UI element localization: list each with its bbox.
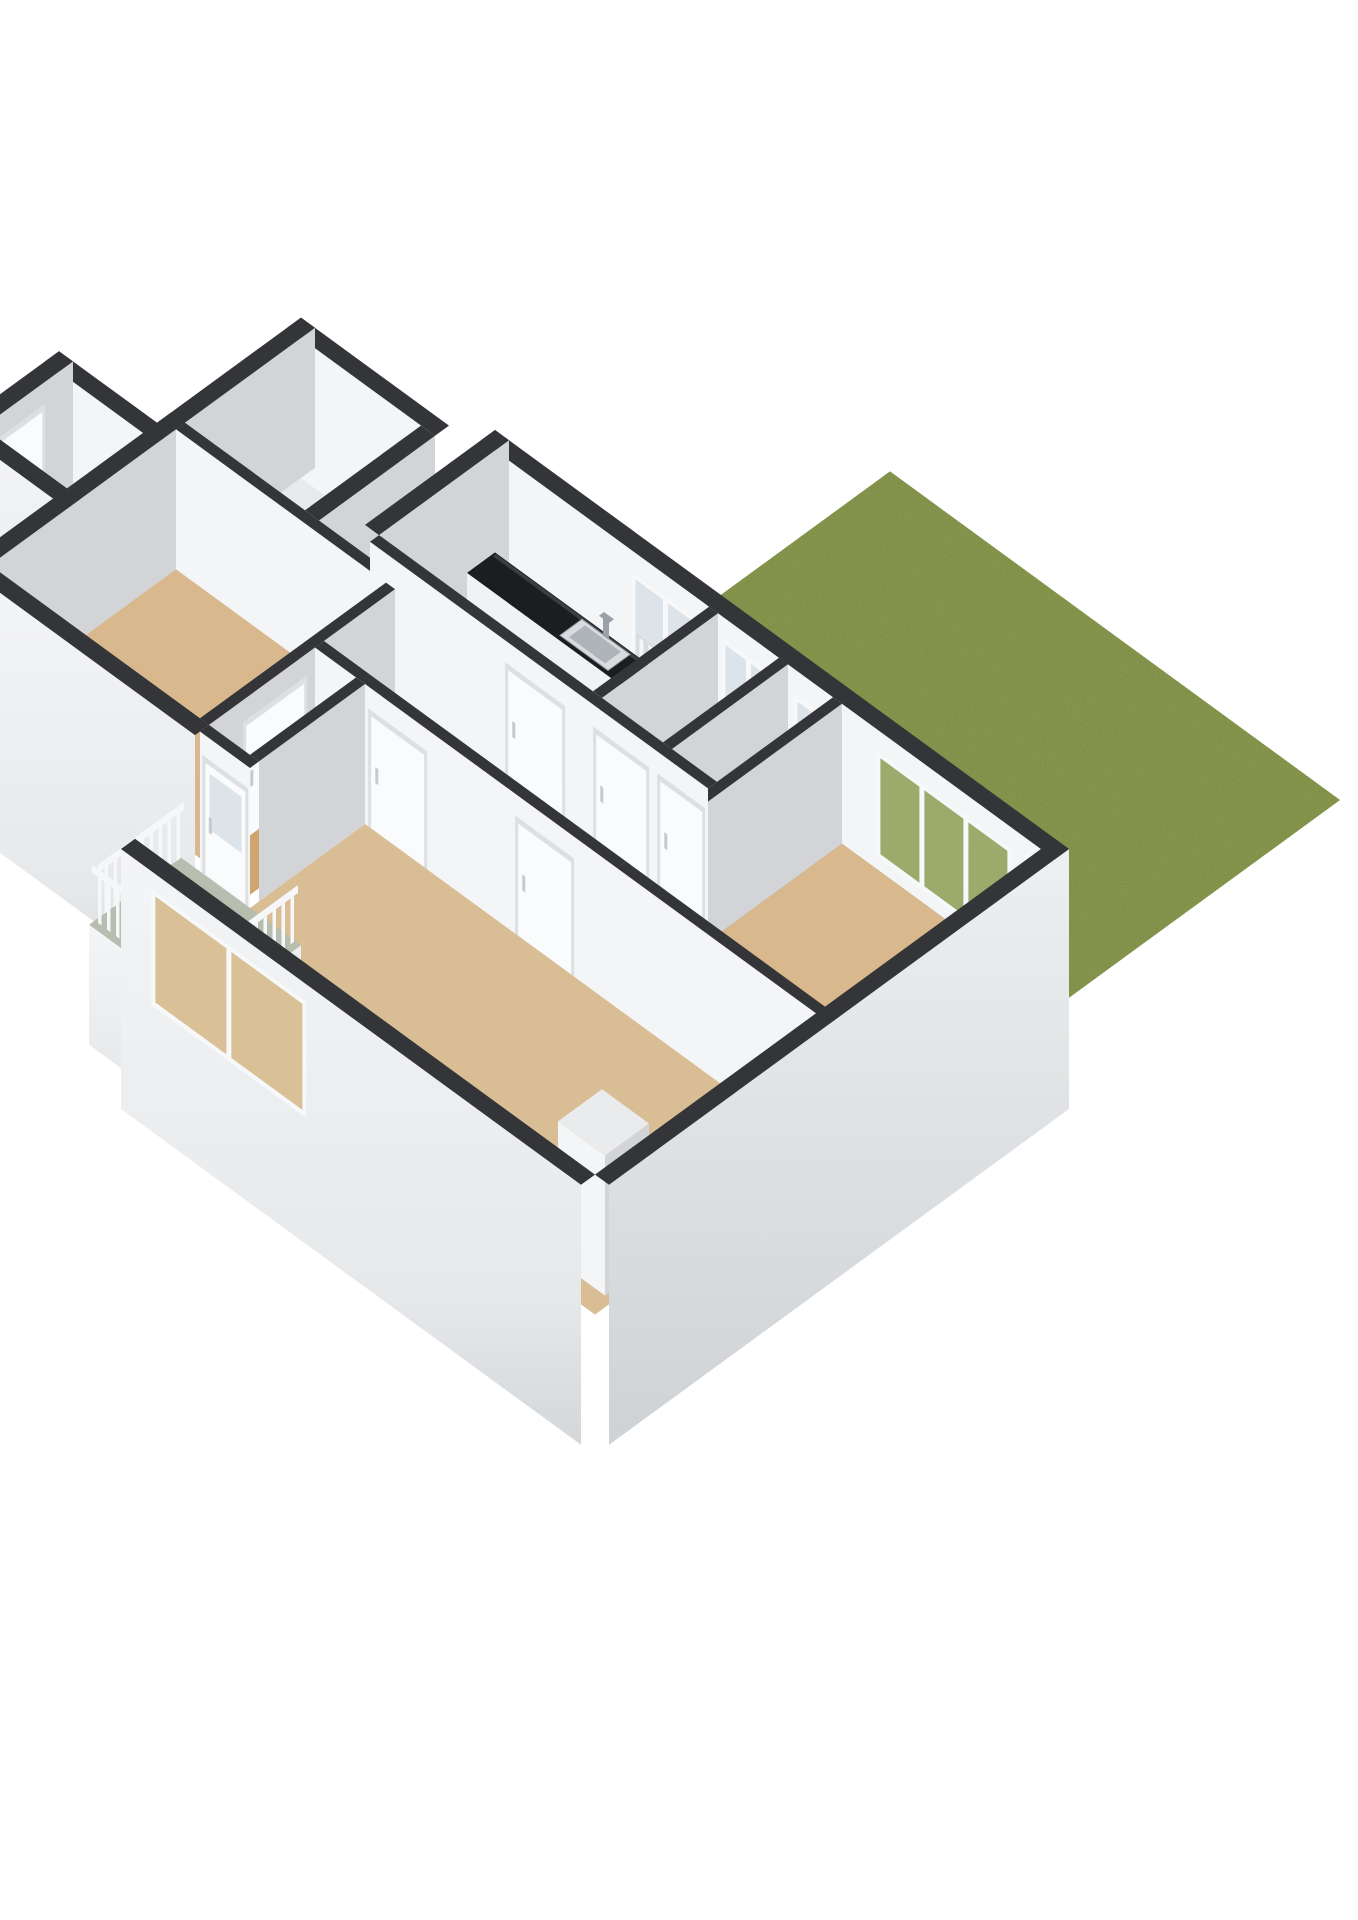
balcony-baluster (107, 884, 111, 933)
floorplan-3d-render (0, 0, 1358, 1920)
floorplan-render-canvas (0, 0, 1358, 1920)
balcony-baluster (282, 903, 286, 952)
balcony-door-handle (209, 817, 212, 835)
balcony-baluster (168, 819, 172, 868)
kitchen-door-handle (512, 721, 515, 739)
living-room-door-1-handle (375, 767, 378, 785)
balcony-baluster (98, 877, 102, 926)
bedroom-left-door-handle (250, 769, 253, 787)
balcony-baluster (291, 896, 295, 945)
shower-room-door-handle (600, 785, 603, 803)
toilet-door-handle (664, 832, 667, 850)
balcony-baluster (116, 890, 120, 939)
living-room-door-2-handle (522, 874, 525, 892)
balcony-baluster (177, 813, 181, 862)
